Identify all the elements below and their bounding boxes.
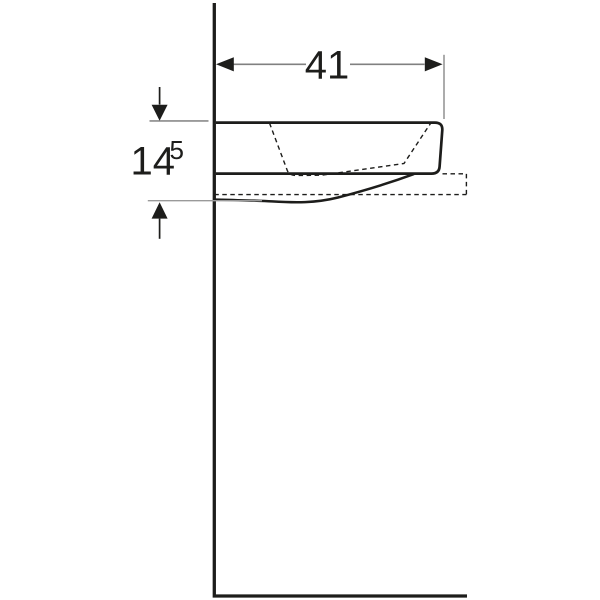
technical-drawing-page: 41 14 5 <box>0 0 600 600</box>
dimension-height: 14 5 <box>131 87 263 239</box>
arrowhead-up-icon <box>152 202 168 218</box>
dimension-width: 41 <box>216 44 444 120</box>
dimension-height-superscript: 5 <box>170 135 184 165</box>
washbasin-side-elevation-drawing: 41 14 5 <box>0 0 600 600</box>
arrowhead-right-icon <box>425 57 443 71</box>
dimension-width-label: 41 <box>305 44 350 88</box>
bowl-underside-curve <box>216 174 414 202</box>
inner-bowl-dashed-contour <box>270 123 431 176</box>
arrowhead-left-icon <box>216 57 234 71</box>
dimension-height-label: 14 <box>131 140 176 184</box>
wall-and-floor-line <box>214 3 467 596</box>
basin-rim-outline <box>216 123 442 174</box>
hidden-outline-right-dashed <box>443 174 467 195</box>
arrowhead-down-icon <box>152 105 168 121</box>
